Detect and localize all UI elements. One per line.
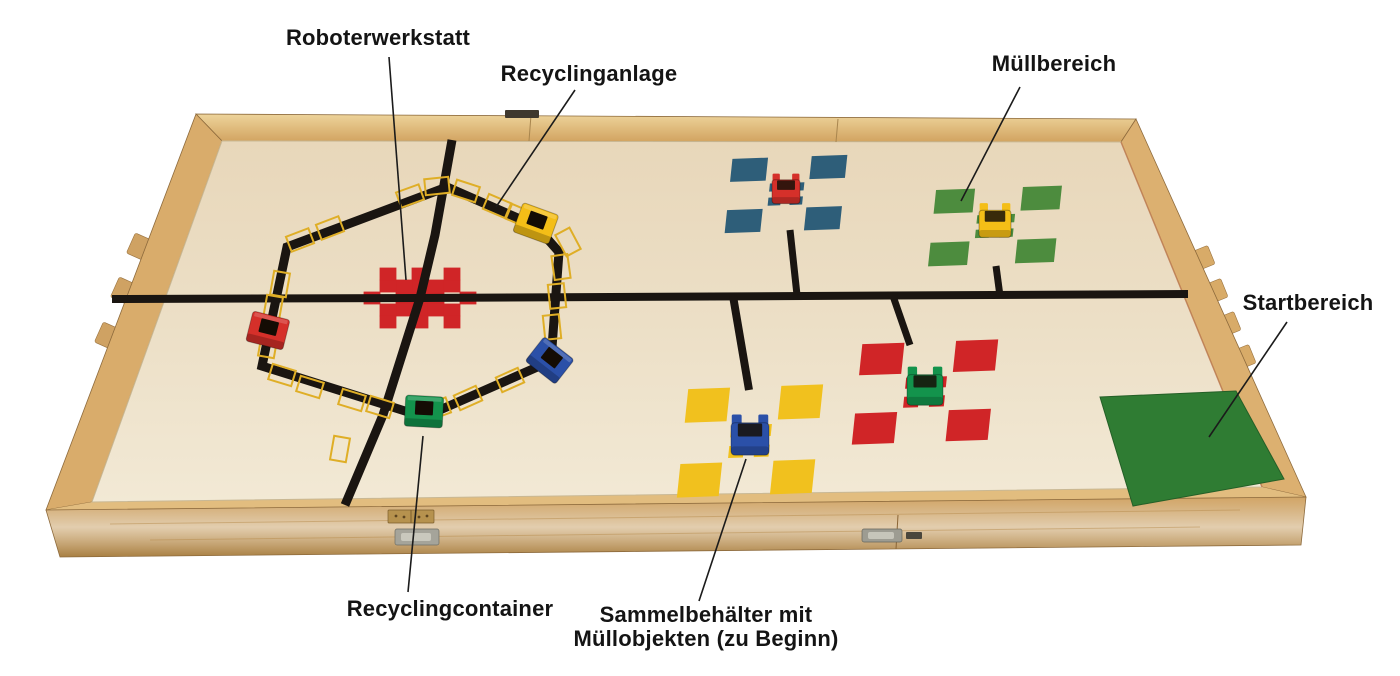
frame-rail-top — [196, 114, 1136, 142]
workshop-star-cell — [428, 304, 445, 317]
label-sammelbehaelter-line2: Müllobjekten (zu Beginn) — [573, 627, 838, 651]
waste-area-big-square — [1020, 186, 1062, 211]
container-shade — [979, 230, 1011, 237]
top-rail-hinge — [505, 110, 539, 118]
recyclingcontainer-green — [404, 395, 444, 428]
waste-area-big-square — [778, 384, 823, 419]
waste-area-big-square — [953, 339, 998, 372]
waste-area-big-square — [725, 209, 763, 233]
waste-area-big-square — [809, 155, 847, 179]
waste-area-big-square — [730, 158, 768, 182]
label-roboterwerkstatt: Roboterwerkstatt — [286, 26, 470, 50]
waste-area-big-square — [804, 206, 842, 230]
label-startbereich: Startbereich — [1243, 291, 1374, 315]
container-opening — [913, 375, 936, 387]
label-muellbereich: Müllbereich — [992, 52, 1116, 76]
container-shade — [907, 397, 943, 405]
waste-area-big-square — [946, 409, 991, 442]
arena-scene — [0, 0, 1400, 676]
label-sammelbehaelter: Sammelbehälter mit Müllobjekten (zu Begi… — [573, 603, 838, 651]
workshop-star-cell — [380, 316, 397, 329]
wooden-table-frame — [46, 110, 1306, 557]
hinge-left — [388, 510, 434, 523]
workshop-star-cell — [428, 280, 445, 293]
container-opening — [985, 211, 1005, 222]
container-shade — [772, 197, 800, 203]
container-opening — [738, 424, 762, 437]
label-recyclinganlage: Recyclinganlage — [501, 62, 678, 86]
waste-area-big-square — [852, 412, 897, 445]
waste-area-big-square — [677, 463, 722, 498]
figure-canvas: Roboterwerkstatt Recyclinganlage Müllber… — [0, 0, 1400, 676]
workshop-star-cell — [444, 316, 461, 329]
waste-area-big-square — [859, 343, 904, 376]
latch-left — [395, 529, 439, 545]
workshop-star-cell — [396, 280, 413, 293]
container-shade — [731, 446, 769, 455]
waste-area-big-square — [928, 241, 970, 266]
ring-container-hole — [415, 401, 434, 416]
workshop-star-cell — [380, 280, 397, 293]
workshop-star-cell — [380, 268, 397, 281]
waste-area-big-square — [1015, 238, 1057, 263]
label-sammelbehaelter-line1: Sammelbehälter mit — [600, 602, 813, 627]
label-recyclingcontainer: Recyclingcontainer — [347, 597, 554, 621]
container-opening — [777, 180, 795, 190]
waste-area-big-square — [934, 189, 976, 214]
waste-area-big-square — [770, 459, 815, 494]
workshop-star-cell — [396, 304, 413, 317]
waste-area-big-square — [685, 388, 730, 423]
branch-green — [996, 266, 1000, 296]
workshop-star-cell — [380, 304, 397, 317]
workshop-star-cell — [444, 268, 461, 281]
workshop-star-cell — [444, 304, 461, 317]
workshop-star-cell — [444, 280, 461, 293]
